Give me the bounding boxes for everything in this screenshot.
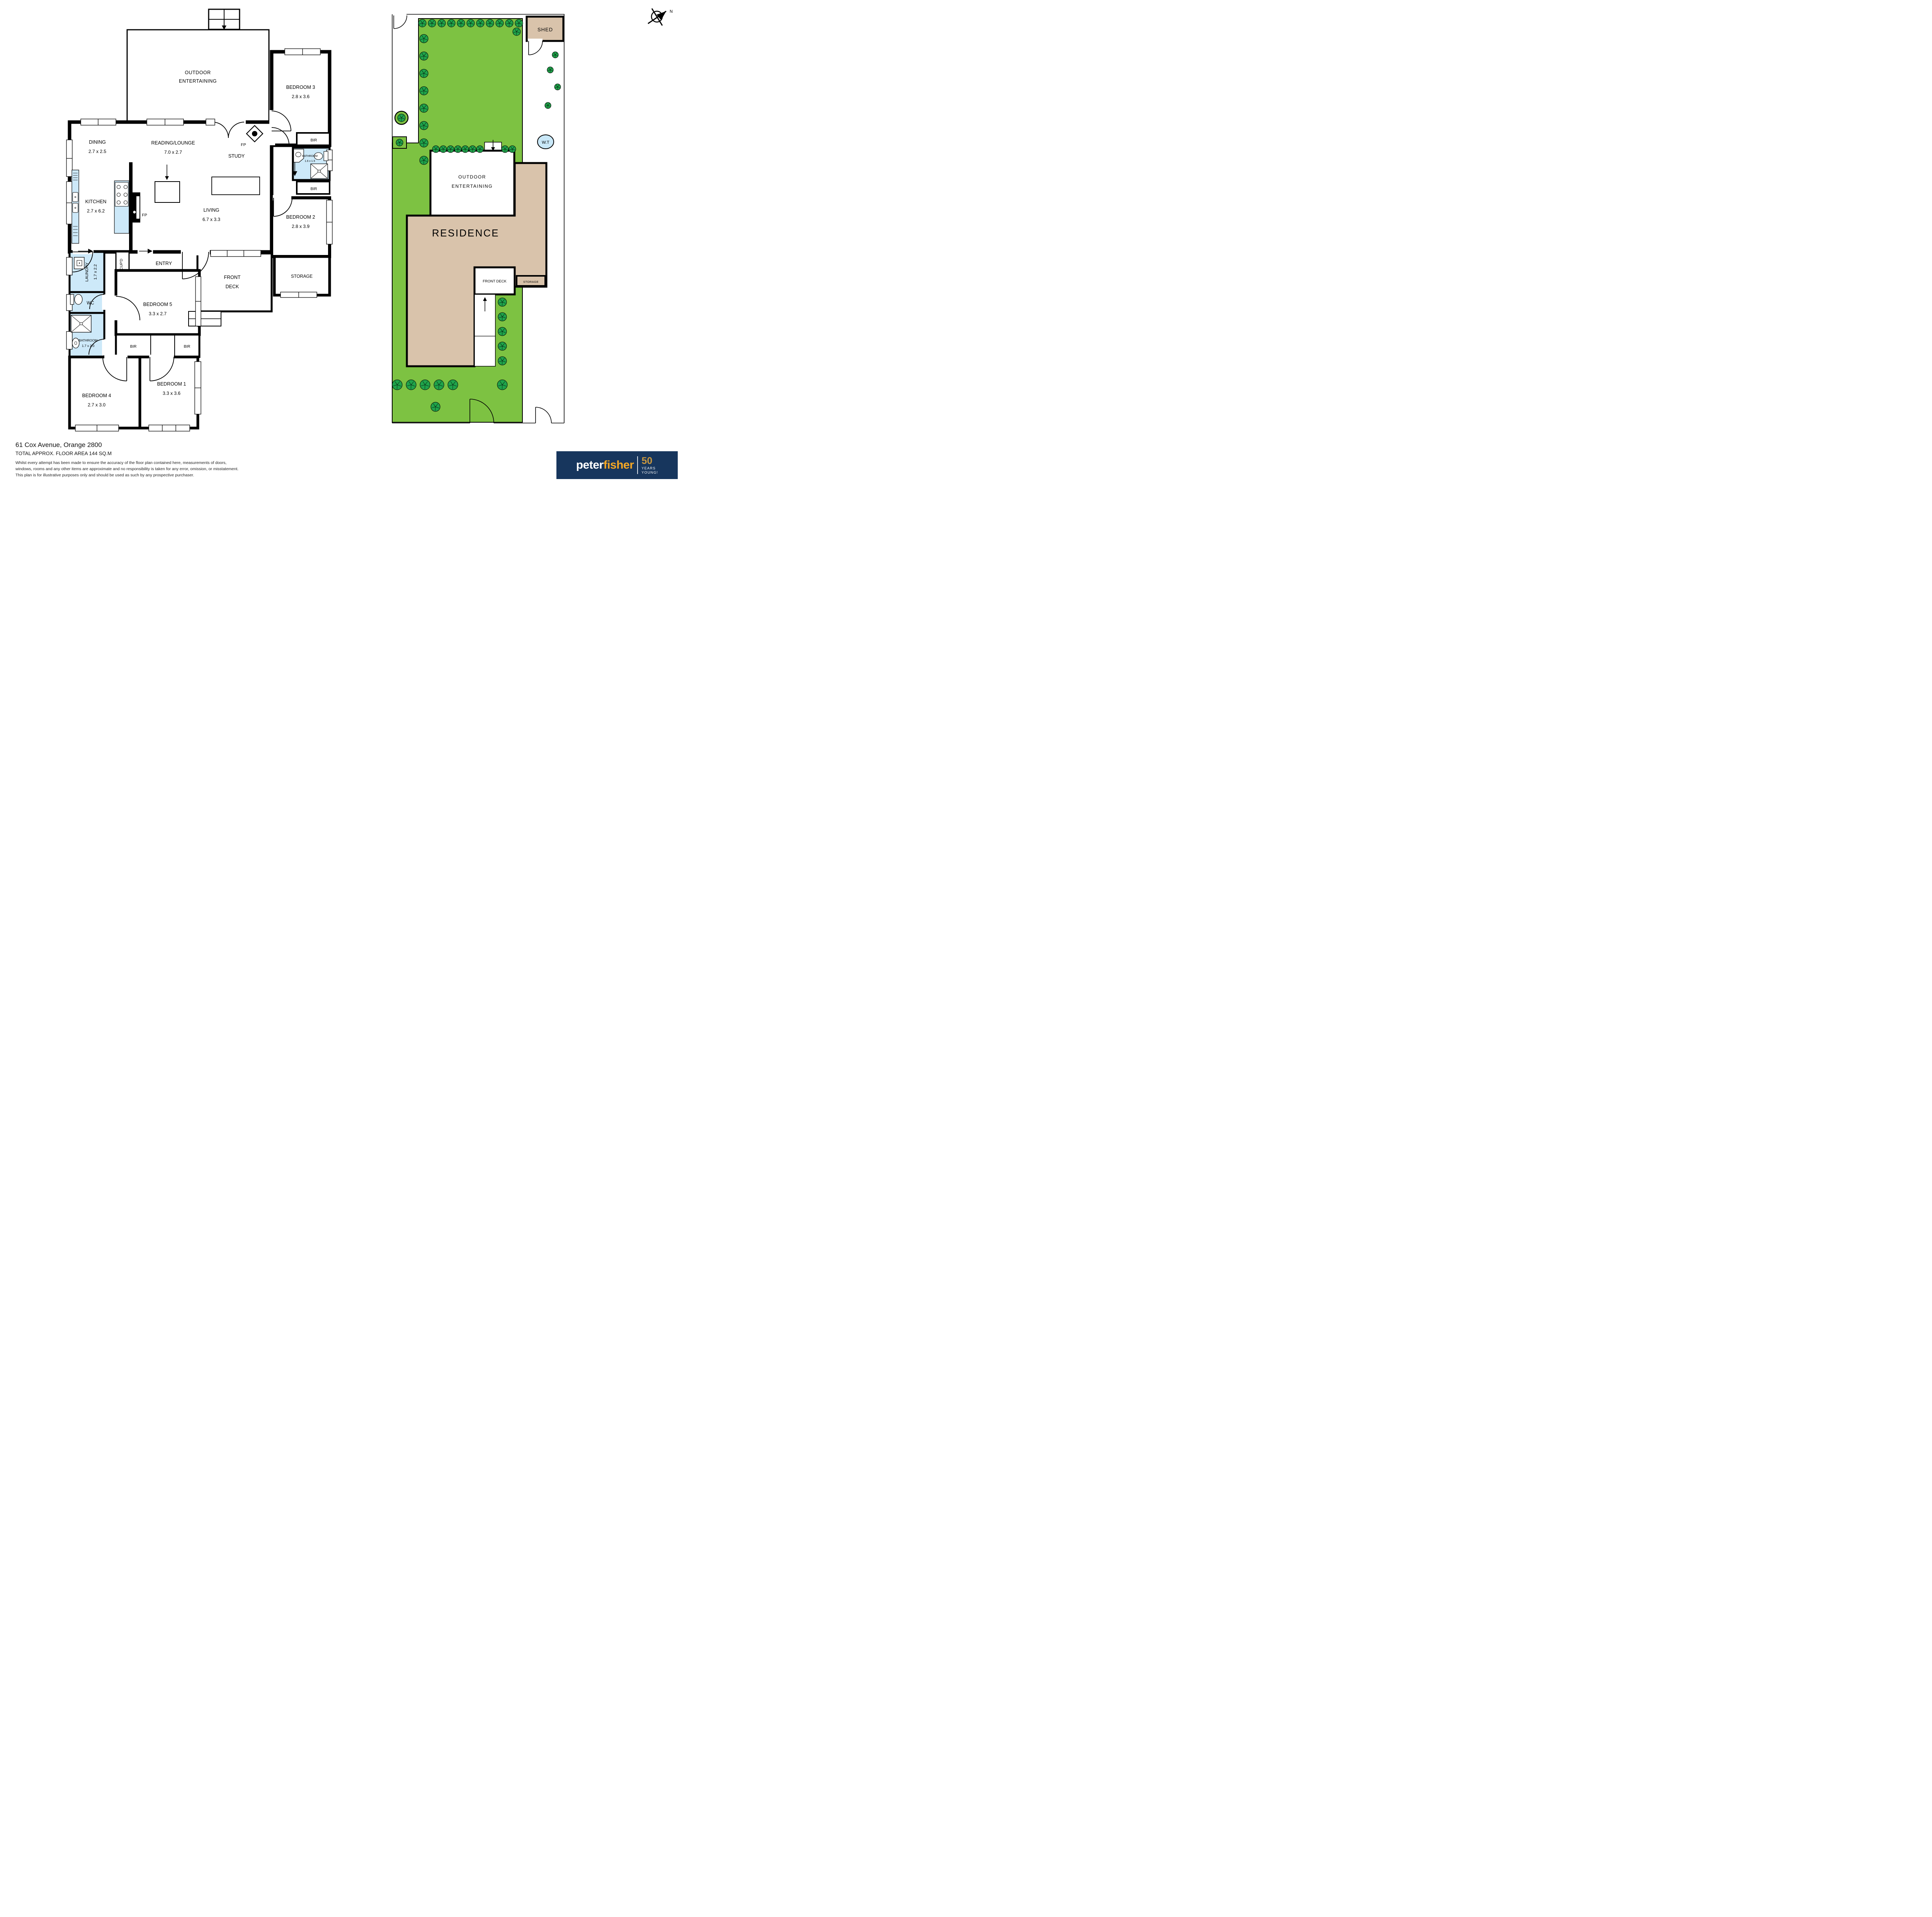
label-kitchen-dims: 2.7 x 6.2 xyxy=(87,208,105,214)
tree-icon xyxy=(428,19,436,27)
tree-icon xyxy=(431,402,440,411)
label-front-deck-2: DECK xyxy=(226,284,239,289)
tree-icon xyxy=(545,102,551,109)
label-wc: WC xyxy=(87,301,94,306)
tree-icon xyxy=(509,146,516,153)
disclaimer-line-1: Whilst every attempt has been made to en… xyxy=(15,460,238,466)
tree-icon xyxy=(420,52,428,60)
tree-icon xyxy=(476,19,484,27)
room-outdoor-entertaining xyxy=(127,30,269,122)
label-bedroom3-dims: 2.8 x 3.6 xyxy=(292,94,310,99)
tree-icon xyxy=(486,19,494,27)
label-reading-dims: 7.0 x 2.7 xyxy=(164,150,182,155)
label-bir-4: BIR xyxy=(184,345,190,349)
site-storage-label: STORAGE xyxy=(523,280,539,284)
label-bathroom-main: BATHROOM xyxy=(79,338,97,342)
tree-icon xyxy=(498,327,507,336)
label-bir-1: BIR xyxy=(311,138,317,143)
tree-icon xyxy=(392,380,402,390)
shed-door xyxy=(528,39,543,55)
tree-icon xyxy=(469,146,476,153)
label-bedroom1-dims: 3.3 x 3.6 xyxy=(163,391,180,396)
tree-icon xyxy=(420,34,428,43)
logo-peter: peter xyxy=(576,459,604,471)
site-walkway xyxy=(474,294,495,366)
tree-icon xyxy=(434,380,444,390)
agency-logo-wordmark: peterfisher xyxy=(576,459,634,471)
site-outdoor-label-1: OUTDOOR xyxy=(458,174,486,180)
label-front-deck-1: FRONT xyxy=(224,275,240,280)
tree-icon xyxy=(515,19,523,27)
tree-icon xyxy=(420,380,430,390)
label-bedroom5: BEDROOM 5 xyxy=(143,302,172,307)
tree-icon xyxy=(547,67,553,73)
logo-years: YEARS xyxy=(641,467,658,470)
tree-icon xyxy=(462,146,469,153)
logo-50: 50 xyxy=(641,456,658,466)
label-study: STUDY xyxy=(228,153,245,159)
tree-icon xyxy=(496,19,503,27)
outdoor-label-1: OUTDOOR xyxy=(185,70,211,75)
tree-icon xyxy=(447,19,455,27)
tree-icon xyxy=(498,298,507,306)
tree-icon xyxy=(498,313,507,321)
tree-icon xyxy=(420,69,428,78)
label-living: LIVING xyxy=(204,207,219,213)
floorplan-drawing: SHED W.T OUTDOOR ENTERTAINING RESIDENCE … xyxy=(0,0,678,479)
address-title: 61 Cox Avenue, Orange 2800 xyxy=(15,441,102,449)
site-outdoor-label-2: ENTERTAINING xyxy=(452,184,493,189)
tree-icon xyxy=(420,87,428,95)
tree-icon xyxy=(420,139,428,147)
label-bathroom-hall: BATHROOM xyxy=(302,155,318,158)
compass-icon: N xyxy=(648,8,673,25)
agency-logo: peterfisher 50 YEARS YOUNG! xyxy=(556,451,678,479)
label-fp-kitchen: FP xyxy=(142,213,147,218)
floor-plan: OUTDOOR ENTERTAINING xyxy=(66,9,332,431)
tree-icon xyxy=(448,380,458,390)
site-front-deck-label: FRONT DECK xyxy=(483,279,507,284)
tree-icon xyxy=(420,104,428,112)
label-bedroom2: BEDROOM 2 xyxy=(286,214,315,220)
site-residence-label: RESIDENCE xyxy=(432,227,499,239)
tree-icon xyxy=(432,146,439,153)
label-bedroom1: BEDROOM 1 xyxy=(157,381,186,387)
label-bathroom-main-dims: 1.7 x 2.0 xyxy=(82,344,95,348)
logo-50-years-badge: 50 YEARS YOUNG! xyxy=(641,456,658,474)
label-bedroom4-dims: 2.7 x 3.0 xyxy=(88,402,105,408)
site-plan: SHED W.T OUTDOOR ENTERTAINING RESIDENCE … xyxy=(392,14,564,423)
tree-icon xyxy=(420,121,428,130)
disclaimer-line-3: This plan is for illustrative purposes o… xyxy=(15,472,238,478)
label-reading: READING/LOUNGE xyxy=(151,140,195,146)
label-entry: ENTRY xyxy=(156,261,172,266)
label-storage: STORAGE xyxy=(291,274,313,279)
top-steps xyxy=(209,9,240,30)
label-laundry: LAUNDRY xyxy=(85,262,89,282)
tree-icon xyxy=(498,342,507,350)
site-outdoor-entertaining xyxy=(430,151,514,216)
tree-icon xyxy=(406,380,416,390)
water-tank-label: W.T xyxy=(542,140,549,145)
tree-icon xyxy=(418,19,426,27)
floor-area-text: TOTAL APPROX. FLOOR AREA 144 SQ.M xyxy=(15,450,112,456)
label-laundry-dims: 1.7 x 2.2 xyxy=(93,264,98,280)
tree-icon xyxy=(440,146,447,153)
logo-fisher: fisher xyxy=(604,459,634,471)
tree-icon xyxy=(457,19,465,27)
front-steps xyxy=(189,311,221,327)
tree-icon xyxy=(552,52,558,58)
logo-young: YOUNG! xyxy=(641,471,658,474)
label-bedroom4: BEDROOM 4 xyxy=(82,393,111,398)
wc-fixtures xyxy=(70,294,82,304)
label-dining-dims: 2.7 x 2.5 xyxy=(88,149,106,154)
label-bedroom2-dims: 2.8 x 3.9 xyxy=(292,224,310,229)
compass-north-label: N xyxy=(670,9,673,14)
label-bir-3: BIR xyxy=(130,345,137,349)
label-bir-2: BIR xyxy=(311,187,317,191)
tree-icon xyxy=(505,19,513,27)
tree-icon xyxy=(447,146,454,153)
label-dining: DINING xyxy=(89,139,106,145)
tree-icon xyxy=(454,146,461,153)
room-bedroom4 xyxy=(70,357,140,428)
label-bedroom3: BEDROOM 3 xyxy=(286,85,315,90)
label-kitchen: KITCHEN xyxy=(85,199,107,204)
wall-kitchen-living xyxy=(129,162,133,252)
disclaimer-line-2: windows, rooms and any other items are a… xyxy=(15,466,238,472)
tree-icon xyxy=(438,19,446,27)
laundry-fixtures xyxy=(74,257,84,269)
tree-icon xyxy=(513,28,520,36)
tree-icon xyxy=(498,357,507,365)
room-front-deck xyxy=(197,253,272,311)
label-bathroom-hall-dims: 1.6 x 1.5 xyxy=(305,160,315,163)
outdoor-label-2: ENTERTAINING xyxy=(179,78,217,84)
label-living-dims: 6.7 x 3.3 xyxy=(202,217,220,222)
disclaimer: Whilst every attempt has been made to en… xyxy=(15,460,238,478)
shed-label: SHED xyxy=(537,27,553,32)
label-cupboard: CUP'D xyxy=(119,258,124,270)
tree-icon xyxy=(420,156,428,165)
tree-icon xyxy=(467,19,474,27)
tree-icon xyxy=(398,114,405,122)
label-bedroom5-dims: 3.3 x 2.7 xyxy=(149,311,167,316)
tree-icon xyxy=(554,84,561,90)
label-fp-lounge: FP xyxy=(241,143,246,147)
tree-icon xyxy=(497,380,507,390)
logo-divider xyxy=(637,456,638,474)
study-desk xyxy=(212,177,260,195)
tree-icon xyxy=(396,139,403,146)
tree-icon xyxy=(502,146,509,153)
tree-icon xyxy=(476,146,483,153)
floorplan-page: SHED W.T OUTDOOR ENTERTAINING RESIDENCE … xyxy=(0,0,678,479)
